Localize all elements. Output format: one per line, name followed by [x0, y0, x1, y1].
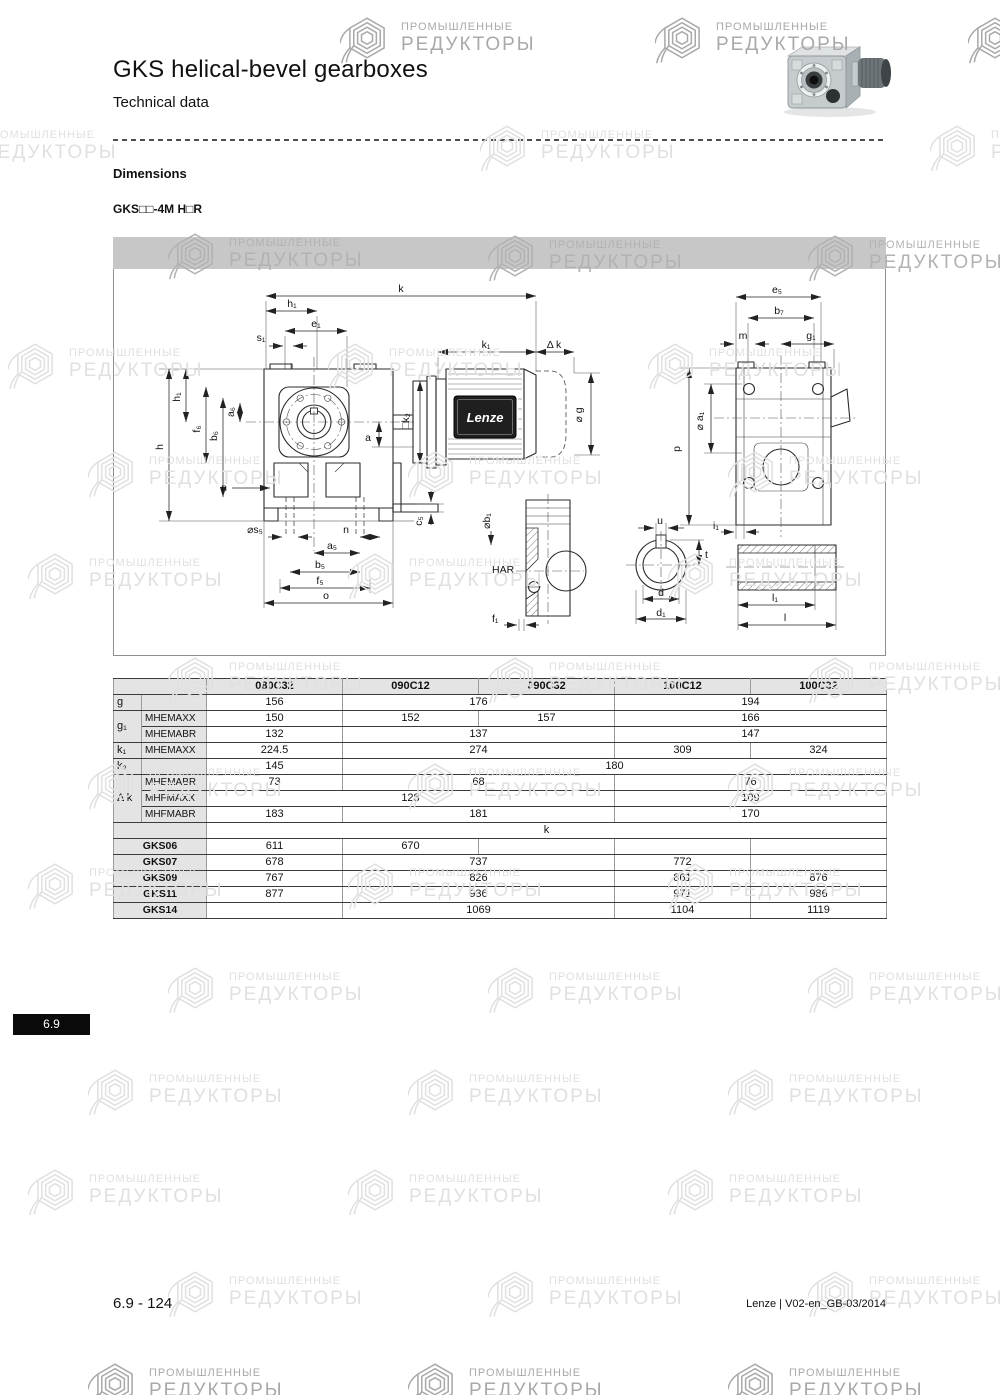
column-header: 100C32 — [751, 679, 887, 695]
dim-label-c5: c₅ — [413, 516, 425, 525]
watermark-text: ПРОМЫШЛЕННЫЕ РЕДУКТОРЫ — [869, 1275, 1000, 1310]
dim-label-h: h — [154, 444, 166, 450]
drawing-box: Lenze — [113, 237, 886, 656]
watermark-line1: ПРОМЫШЛЕННЫЕ — [149, 1367, 284, 1380]
row-label: Δ k — [114, 775, 142, 823]
watermark-line1: ПРОМЫШЛЕННЫЕ — [469, 1367, 604, 1380]
column-header: 100C12 — [615, 679, 751, 695]
table-cell: 166 — [615, 711, 887, 727]
watermark: ПРОМЫШЛЕННЫЕ РЕДУКТОРЫ — [668, 1162, 864, 1218]
dim-label-k2sq: □k₂ — [400, 413, 412, 429]
row-label-gks: GKS06 — [114, 839, 207, 855]
watermark-line1: ПРОМЫШЛЕННЫЕ — [469, 1073, 604, 1086]
watermark-line1: ПРОМЫШЛЕННЫЕ — [229, 1275, 364, 1288]
watermark-line2: РЕДУКТОРЫ — [469, 1380, 604, 1395]
watermark-text: ПРОМЫШЛЕННЫЕ РЕДУКТОРЫ — [869, 971, 1000, 1006]
dimension-lines — [159, 296, 836, 631]
hexagon-logo-icon — [28, 1162, 82, 1218]
row-label: k₁ — [114, 743, 142, 759]
watermark-text: ПРОМЫШЛЕННЫЕ РЕДУКТОРЫ — [469, 1367, 604, 1395]
hexagon-logo-icon — [488, 960, 542, 1016]
watermark-text: ПРОМЫШЛЕННЫЕ РЕДУКТОРЫ — [149, 1073, 284, 1108]
table-cell: 1069 — [343, 903, 615, 919]
hexagon-logo-icon — [655, 10, 709, 66]
dim-label-b7: b₇ — [774, 305, 784, 317]
table-cell — [479, 839, 615, 855]
hexagon-logo-icon — [168, 960, 222, 1016]
dim-label-b6: b₆ — [208, 431, 220, 441]
watermark-line2: РЕДУКТОРЫ — [469, 1086, 604, 1108]
dim-label-a: a — [365, 432, 371, 444]
watermark-line2: РЕДУКТОРЫ — [789, 1380, 924, 1395]
watermark: ПРОМЫШЛЕННЫЕ РЕДУКТОРЫ — [728, 1062, 924, 1118]
column-header: 080C32 — [207, 679, 343, 695]
table-cell: 971 — [615, 887, 751, 903]
row-sublabel: MHEMAXX — [142, 711, 207, 727]
table-cell — [751, 855, 887, 871]
table-cell — [207, 903, 343, 919]
drawing-header-band — [113, 237, 886, 269]
watermark-line2: РЕДУКТОРЫ — [0, 142, 118, 164]
hexagon-logo-icon — [808, 1264, 862, 1320]
section-badge: 6.9 — [13, 1014, 90, 1035]
hexagon-logo-icon — [88, 1356, 142, 1395]
hexagon-logo-icon — [488, 1264, 542, 1320]
dim-label-b5: b₅ — [315, 559, 325, 571]
dim-label-o: o — [323, 590, 329, 602]
dim-label-a5: a₅ — [327, 540, 337, 552]
dim-label-a6: a₆ — [225, 407, 237, 417]
watermark: ПРОМЫШЛЕННЫЕ РЕДУКТОРЫ — [168, 1264, 364, 1320]
column-header: 090C12 — [343, 679, 479, 695]
hexagon-logo-icon — [348, 1162, 402, 1218]
table-row: GKS09 767 826 861 876 — [114, 871, 887, 887]
table-cell: 678 — [207, 855, 343, 871]
page-title: GKS helical-bevel gearboxes — [113, 56, 428, 84]
watermark-line1: ПРОМЫШЛЕННЫЕ — [549, 1275, 684, 1288]
section-heading: Dimensions — [113, 166, 187, 181]
watermark-line1: ПРОМЫШЛЕННЫЕ — [991, 129, 1000, 142]
table-row: Δ k MHEMABR 73 68 76 — [114, 775, 887, 791]
har-section-detail — [516, 494, 586, 624]
row-label: g₁ — [114, 711, 142, 743]
watermark-line1: ПРОМЫШЛЕННЫЕ — [869, 661, 1000, 674]
hexagon-logo-icon — [28, 856, 82, 912]
dim-label-l: l — [784, 612, 786, 624]
watermark-line2: РЕДУКТОРЫ — [149, 1380, 284, 1395]
watermark: ПРОМЫШЛЕННЫЕ РЕДУКТОРЫ — [808, 960, 1000, 1016]
row-sublabel: MHEMABR — [142, 727, 207, 743]
table-cell: 1104 — [615, 903, 751, 919]
k-section-header: k — [207, 823, 887, 839]
watermark-line2: РЕДУКТОРЫ — [409, 1186, 544, 1208]
row-sublabel: MHFMAXX — [142, 791, 207, 807]
row-sublabel: MHEMABR — [142, 775, 207, 791]
row-sublabel: MHEMAXX — [142, 743, 207, 759]
table-cell: 876 — [751, 871, 887, 887]
page-subtitle: Technical data — [113, 94, 209, 111]
product-photo — [780, 40, 896, 120]
row-label-gks: GKS11 — [114, 887, 207, 903]
watermark-text: ПРОМЫШЛЕННЫЕ РЕДУКТОРЫ — [869, 239, 1000, 274]
hexagon-logo-icon — [930, 118, 984, 174]
table-row: MHFMAXX 128 109 — [114, 791, 887, 807]
watermark: ПРОМЫШЛЕННЫЕ РЕДУКТОРЫ — [808, 1264, 1000, 1320]
watermark-line1: ПРОМЫШЛЕННЫЕ — [401, 21, 536, 34]
watermark-text: ПРОМЫШЛЕННЫЕ РЕДУКТОРЫ — [789, 1073, 924, 1108]
watermark-text: ПРОМЫШЛЕННЫЕ РЕДУКТОРЫ — [789, 1367, 924, 1395]
watermark: ПРОМЫШЛЕННЫЕ РЕДУКТОРЫ — [488, 1264, 684, 1320]
watermark-line2: РЕДУКТОРЫ — [869, 674, 1000, 696]
table-cell: 132 — [207, 727, 343, 743]
watermark-line2: РЕДУКТОРЫ — [549, 984, 684, 1006]
watermark-line2: РЕДУКТОРЫ — [401, 34, 536, 56]
table-cell: 877 — [207, 887, 343, 903]
dim-label-t: t — [705, 549, 708, 561]
table-cell: 324 — [751, 743, 887, 759]
watermark-line1: ПРОМЫШЛЕННЫЕ — [869, 1275, 1000, 1288]
watermark: ПРОМЫШЛЕННЫЕ РЕДУКТОРЫ — [408, 1062, 604, 1118]
watermark: ПРОМЫШЛЕННЫЕ РЕДУКТОРЫ — [28, 1162, 224, 1218]
table-cell: 150 — [207, 711, 343, 727]
watermark: ПРОМЫШЛЕННЫЕ РЕДУКТОРЫ — [88, 1062, 284, 1118]
row-sublabel — [142, 759, 207, 775]
table-row: MHEMABR 132 137 147 — [114, 727, 887, 743]
dim-label-m: m — [739, 330, 748, 342]
dim-label-e5: e₅ — [772, 284, 782, 296]
table-cell: 109 — [615, 791, 887, 807]
drawing-canvas: Lenze — [113, 269, 886, 656]
table-cell: 611 — [207, 839, 343, 855]
dim-label-dk: Δ k — [547, 339, 562, 351]
hexagon-logo-icon — [728, 1062, 782, 1118]
dim-label-d: d — [658, 587, 664, 599]
table-row: GKS07 678 737 772 — [114, 855, 887, 871]
page-number: 6.9 - 124 — [113, 1295, 172, 1312]
row-label-gks: GKS07 — [114, 855, 207, 871]
table-cell: 152 — [343, 711, 479, 727]
table-cell: 1119 — [751, 903, 887, 919]
hexagon-logo-icon — [480, 118, 534, 174]
table-cell — [615, 839, 751, 855]
dim-label-i1: i₁ — [713, 520, 719, 532]
dim-label-g: ⌀ g — [573, 407, 585, 422]
table-cell: 156 — [207, 695, 343, 711]
watermark-text: ПРОМЫШЛЕННЫЕ РЕДУКТОРЫ — [729, 1173, 864, 1208]
watermark-line2: РЕДУКТОРЫ — [149, 1086, 284, 1108]
hexagon-logo-icon — [668, 1162, 722, 1218]
watermark-text: ПРОМЫШЛЕННЫЕ РЕДУКТОРЫ — [991, 129, 1000, 164]
watermark-line1: ПРОМЫШЛЕННЫЕ — [789, 1367, 924, 1380]
table-cell: 128 — [207, 791, 615, 807]
table-cell: 224.5 — [207, 743, 343, 759]
table-cell: 157 — [479, 711, 615, 727]
hexagon-logo-icon — [968, 10, 1000, 66]
watermark-line2: РЕДУКТОРЫ — [229, 984, 364, 1006]
table-cell: 137 — [343, 727, 615, 743]
hexagon-logo-icon — [728, 1356, 782, 1395]
watermark-line2: РЕДУКТОРЫ — [991, 142, 1000, 164]
dim-label-e1: e₁ — [311, 318, 321, 330]
watermark-text: ПРОМЫШЛЕННЫЕ РЕДУКТОРЫ — [0, 129, 118, 164]
table-row: g 156 176 194 — [114, 695, 887, 711]
watermark-line2: РЕДУКТОРЫ — [229, 1288, 364, 1310]
watermark-line1: ПРОМЫШЛЕННЫЕ — [229, 661, 364, 674]
table-cell: 826 — [343, 871, 615, 887]
dim-label-l1: l₁ — [772, 592, 778, 604]
table-row: g₁ MHEMAXX 150 152 157 166 — [114, 711, 887, 727]
row-label-gks: GKS09 — [114, 871, 207, 887]
dim-label-b1: ⌀b₁ — [481, 513, 493, 529]
watermark-text: ПРОМЫШЛЕННЫЕ РЕДУКТОРЫ — [229, 971, 364, 1006]
watermark-text: ПРОМЫШЛЕННЫЕ РЕДУКТОРЫ — [541, 129, 676, 164]
watermark-line1: ПРОМЫШЛЕННЫЕ — [409, 1173, 544, 1186]
table-cell: 147 — [615, 727, 887, 743]
table-cell: 68 — [343, 775, 615, 791]
dim-label-a1: ⌀ a₁ — [694, 411, 706, 430]
watermark: ПРОМЫШЛЕННЫЕ РЕДУКТОРЫ — [88, 1356, 284, 1395]
dim-label-h1-left: h₁ — [171, 392, 183, 402]
technical-drawing: Lenze — [114, 269, 885, 654]
watermark: ПРОМЫШЛЕННЫЕ РЕДУКТОРЫ — [480, 118, 676, 174]
watermark-text: ПРОМЫШЛЕННЫЕ РЕДУКТОРЫ — [549, 971, 684, 1006]
model-designation: GKS□□-4M H□R — [113, 202, 202, 216]
table-row: GKS14 1069 1104 1119 — [114, 903, 887, 919]
watermark: ПРОМЫШЛЕННЫЕ РЕДУКТОРЫ — [930, 118, 1000, 174]
table-row: k₁ MHEMAXX 224.5 274 309 324 — [114, 743, 887, 759]
dim-label-p: p — [671, 446, 683, 452]
watermark-text: ПРОМЫШЛЕННЫЕ РЕДУКТОРЫ — [409, 1173, 544, 1208]
table-cell: 73 — [207, 775, 343, 791]
catalog-page: ПРОМЫШЛЕННЫЕ РЕДУКТОРЫ ПРОМЫШЛЕННЫЕ РЕДУ… — [0, 0, 1000, 1395]
table-cell: 986 — [751, 887, 887, 903]
row-label: g — [114, 695, 142, 711]
dim-label-f1: f₁ — [492, 613, 499, 625]
watermark: ПРОМЫШЛЕННЫЕ РЕДУКТОРЫ — [488, 960, 684, 1016]
watermark-line1: ПРОМЫШЛЕННЫЕ — [716, 21, 851, 34]
row-sublabel — [142, 695, 207, 711]
table-cell: 183 — [207, 807, 343, 823]
table-cell — [751, 839, 887, 855]
hexagon-logo-icon — [408, 1356, 462, 1395]
hexagon-logo-icon — [168, 1264, 222, 1320]
watermark-line1: ПРОМЫШЛЕННЫЕ — [549, 661, 684, 674]
table-cell: 181 — [343, 807, 615, 823]
table-cell: 180 — [343, 759, 887, 775]
dim-label-u: u — [657, 515, 663, 527]
hexagon-logo-icon — [408, 1062, 462, 1118]
table-row: GKS11 877 936 971 986 — [114, 887, 887, 903]
dashed-divider — [113, 139, 886, 141]
corner-cell — [114, 679, 207, 695]
dim-label-g1: g₁ — [806, 330, 816, 342]
corner-cell — [114, 823, 207, 839]
watermark: ПРОМЫШЛЕННЫЕ РЕДУКТОРЫ — [348, 1162, 544, 1218]
hexagon-logo-icon — [8, 336, 62, 392]
watermark-line1: ПРОМЫШЛЕННЫЕ — [89, 1173, 224, 1186]
watermark-text: ПРОМЫШЛЕННЫЕ РЕДУКТОРЫ — [149, 1367, 284, 1395]
watermark-line1: ПРОМЫШЛЕННЫЕ — [789, 1073, 924, 1086]
watermark-line2: РЕДУКТОРЫ — [549, 1288, 684, 1310]
table-cell: 309 — [615, 743, 751, 759]
hexagon-logo-icon — [808, 960, 862, 1016]
dim-label-k1: k₁ — [482, 339, 491, 351]
watermark-line1: ПРОМЫШЛЕННЫЕ — [0, 129, 118, 142]
dim-label-f5: f₅ — [316, 575, 323, 587]
watermark-line2: РЕДУКТОРЫ — [789, 1086, 924, 1108]
watermark-text: ПРОМЫШЛЕННЫЕ РЕДУКТОРЫ — [229, 1275, 364, 1310]
row-sublabel: MHFMABR — [142, 807, 207, 823]
watermark: ПРОМЫШЛЕННЫЕ РЕДУКТОРЫ — [168, 960, 364, 1016]
dim-label-s1: s₁ — [257, 332, 266, 344]
watermark: ПРОМЫШЛЕННЫЕ РЕДУКТОРЫ — [408, 1356, 604, 1395]
watermark: ПРОМЫШЛЕННЫЕ РЕДУКТОРЫ — [968, 10, 1000, 66]
watermark-line1: ПРОМЫШЛЕННЫЕ — [549, 971, 684, 984]
table-cell: 170 — [615, 807, 887, 823]
brand-label: Lenze — [467, 410, 504, 425]
watermark-line1: ПРОМЫШЛЕННЫЕ — [229, 971, 364, 984]
watermark-line1: ПРОМЫШЛЕННЫЕ — [869, 971, 1000, 984]
watermark: ПРОМЫШЛЕННЫЕ РЕДУКТОРЫ — [0, 118, 118, 174]
dim-label-f6: f₆ — [191, 425, 203, 432]
watermark: ПРОМЫШЛЕННЫЕ РЕДУКТОРЫ — [728, 1356, 924, 1395]
watermark-text: ПРОМЫШЛЕННЫЕ РЕДУКТОРЫ — [549, 1275, 684, 1310]
watermark-text: ПРОМЫШЛЕННЫЕ РЕДУКТОРЫ — [869, 661, 1000, 696]
watermark-line2: РЕДУКТОРЫ — [869, 252, 1000, 274]
table-cell: 145 — [207, 759, 343, 775]
table-header-row: 080C32 090C12 090C32 100C12 100C32 — [114, 679, 887, 695]
table-cell: 194 — [615, 695, 887, 711]
watermark-line2: РЕДУКТОРЫ — [89, 1186, 224, 1208]
view-label-har: HAR — [492, 564, 515, 576]
watermark-line1: ПРОМЫШЛЕННЫЕ — [729, 1173, 864, 1186]
dimensions-table: 080C32 090C12 090C32 100C12 100C32 g 156… — [113, 678, 887, 919]
table-cell: 936 — [343, 887, 615, 903]
watermark-line2: РЕДУКТОРЫ — [541, 142, 676, 164]
hexagon-logo-icon — [88, 1062, 142, 1118]
side-view — [714, 355, 858, 537]
motor: Lenze — [446, 369, 566, 459]
hollow-shaft — [726, 545, 846, 590]
table-row: k — [114, 823, 887, 839]
watermark-line2: РЕДУКТОРЫ — [729, 1186, 864, 1208]
table-cell: 737 — [343, 855, 615, 871]
table-cell: 274 — [343, 743, 615, 759]
watermark-line2: РЕДУКТОРЫ — [869, 984, 1000, 1006]
watermark-text: ПРОМЫШЛЕННЫЕ РЕДУКТОРЫ — [401, 21, 536, 56]
dim-label-k: k — [398, 283, 404, 295]
table-cell: 772 — [615, 855, 751, 871]
row-label-gks: GKS14 — [114, 903, 207, 919]
watermark-text: ПРОМЫШЛЕННЫЕ РЕДУКТОРЫ — [469, 1073, 604, 1108]
row-label: k₂ — [114, 759, 142, 775]
watermark-line1: ПРОМЫШЛЕННЫЕ — [869, 239, 1000, 252]
table-row: MHFMABR 183 181 170 — [114, 807, 887, 823]
watermark-line2: РЕДУКТОРЫ — [869, 1288, 1000, 1310]
column-header: 090C32 — [479, 679, 615, 695]
dim-label-n-bottom: n — [343, 524, 349, 536]
watermark-line1: ПРОМЫШЛЕННЫЕ — [149, 1073, 284, 1086]
table-cell: 176 — [343, 695, 615, 711]
table-cell: 76 — [615, 775, 887, 791]
dim-label-d1: d₁ — [656, 607, 666, 619]
watermark-text: ПРОМЫШЛЕННЫЕ РЕДУКТОРЫ — [89, 1173, 224, 1208]
table-cell: 767 — [207, 871, 343, 887]
document-reference: Lenze | V02-en_GB-03/2014 — [746, 1298, 886, 1310]
dim-label-h1: h₁ — [287, 298, 297, 310]
dim-label-n-left: n — [221, 482, 227, 494]
table-cell: 670 — [343, 839, 479, 855]
hexagon-logo-icon — [28, 546, 82, 602]
table-row: GKS06 611 670 — [114, 839, 887, 855]
table-row: k₂ 145 180 — [114, 759, 887, 775]
dim-label-s5: ⌀s₅ — [247, 524, 263, 536]
table-cell: 861 — [615, 871, 751, 887]
